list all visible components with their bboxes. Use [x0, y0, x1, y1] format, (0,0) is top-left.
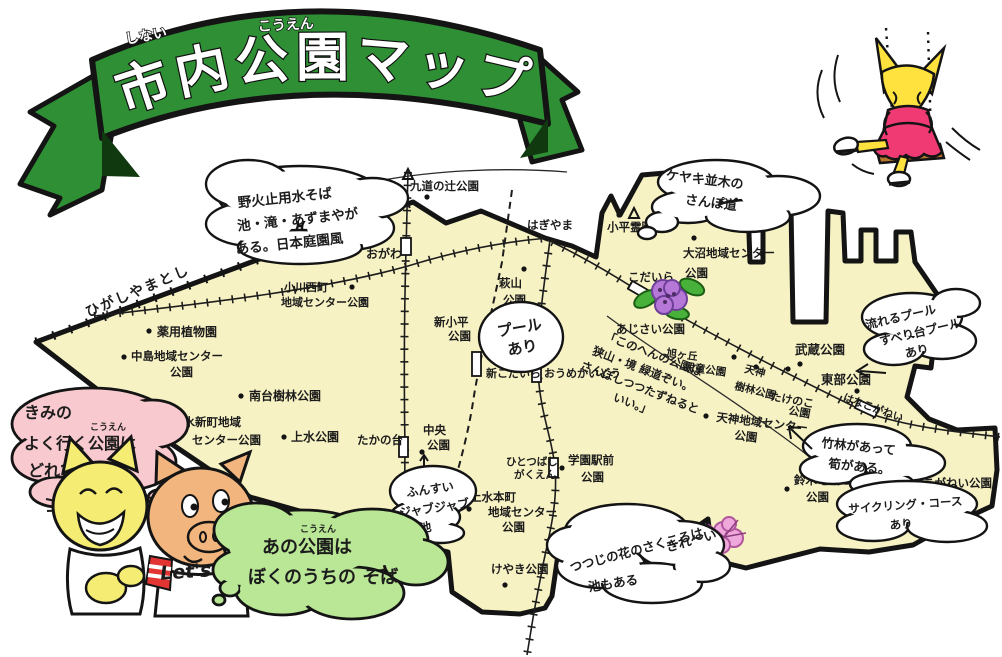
park-map-canvas: おがわ はぎやま 新こだいら おうめかいどう こだいら たかの台 ひとつばし が… [0, 0, 1002, 657]
park-label-chuo-2: 公園 [427, 438, 450, 452]
banner-fold-left [102, 130, 140, 177]
park-label-josui-shinmachi-2: センター公園 [192, 433, 261, 447]
station-label-hitotsubashi-1: ひとつばし [506, 455, 558, 468]
park-label-musashi: 武蔵公園 [795, 342, 845, 357]
station-label-hitotsubashi-2: がくえん [514, 468, 556, 481]
bubble-pig-line2: ぼくのうちの そば [248, 567, 398, 588]
park-label-josui: 上水公園 [291, 429, 339, 444]
park-label-ogawa-nishi-1: 小川西町 [283, 280, 328, 294]
bubble-pig-line1: あの公園は [262, 537, 352, 558]
park-label-shin-kodaira-2: 公園 [448, 329, 471, 343]
bubble-cat-line1: きみの [24, 403, 72, 422]
station-label-hagiyama: はぎやま [527, 218, 573, 232]
city-park-map: おがわ はぎやま 新こだいら おうめかいどう こだいら たかの台 ひとつばし が… [0, 0, 1002, 657]
park-label-chuo-1: 中央 [423, 423, 446, 437]
station-label-ogawa: おがわ [366, 246, 402, 261]
bubble-pig-furigana: こうえん [300, 524, 336, 535]
park-label-keyaki: けやき公園 [491, 562, 549, 576]
bubble-cycling-line2: あり [889, 517, 913, 533]
bubble-cat-furigana: こうえん [90, 422, 126, 433]
park-label-ogawa-nishi-2: 地域センター公園 [281, 295, 369, 309]
park-label-shin-kodaira-1: 新小平 [434, 315, 469, 329]
park-label-gakuen-1: 学園駅前 [568, 453, 614, 467]
pig-shirt-text: Let's [159, 559, 212, 585]
bubble-cycling: サイクリング・コース あり [837, 481, 987, 542]
park-label-nakajima-2: 公園 [170, 365, 193, 379]
cat-paw-2 [118, 566, 144, 586]
bubble-pool: プール あり [479, 302, 563, 372]
park-label-ajisai: あじさい公園 [616, 322, 685, 336]
station-shin-kodaira [472, 352, 481, 376]
bubble-pig-answer: こうえん あの公園は ぼくのうちの そば [213, 503, 448, 619]
park-label-gakuen-2: 公園 [581, 470, 604, 484]
park-label-tenjin-chiiki-2: 公園 [734, 428, 759, 445]
park-label-suzuki-2: 公園 [806, 490, 829, 504]
station-ogawa [401, 238, 411, 255]
park-label-yakuyo: 薬用植物園 [157, 324, 217, 339]
park-label-hagiyama-1: 萩山 [498, 276, 522, 290]
station-label-takanodai: たかの台 [357, 433, 403, 447]
park-label-onuma-1: 大沼地域センター [683, 246, 775, 260]
park-label-nakajima-1: 中島地域センター [131, 349, 223, 363]
park-label-josui-honcho-2: 地域センター [488, 505, 557, 519]
swing-girl-character [817, 28, 980, 186]
park-label-kudo-no-tsuji: 九道の辻公園 [409, 179, 479, 193]
park-label-minamidai: 南台樹林公園 [249, 388, 321, 403]
park-label-josui-honcho-3: 公園 [502, 520, 525, 534]
